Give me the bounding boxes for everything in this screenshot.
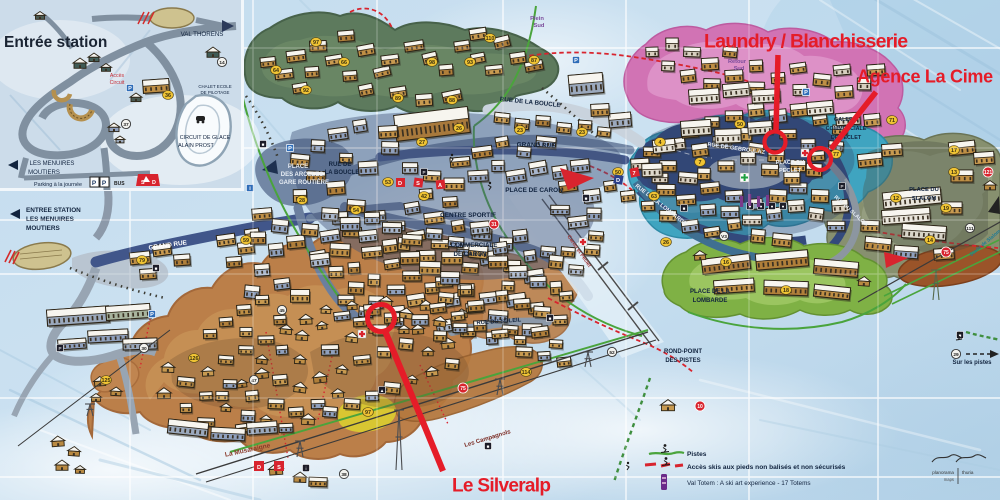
svg-text:110: 110	[486, 36, 495, 42]
svg-text:D: D	[398, 181, 402, 187]
svg-text:114: 114	[522, 370, 531, 376]
svg-text:■: ■	[683, 206, 686, 211]
svg-text:63: 63	[651, 194, 657, 200]
svg-text:COMMERCIALE: COMMERCIALE	[451, 242, 498, 249]
svg-text:Circuit: Circuit	[110, 80, 125, 86]
svg-text:Plein: Plein	[530, 16, 544, 22]
svg-text:Val Totem : A ski art experien: Val Totem : A ski art experience - 17 To…	[687, 480, 811, 487]
svg-text:29: 29	[953, 352, 959, 358]
svg-text:GARE ROUTIÈRE: GARE ROUTIÈRE	[279, 178, 329, 186]
svg-text:Retour: Retour	[728, 59, 747, 65]
svg-text:CENTRE SPORTIF: CENTRE SPORTIF	[440, 212, 496, 219]
svg-text:88: 88	[449, 98, 455, 104]
svg-text:P: P	[92, 180, 97, 187]
svg-text:P: P	[288, 146, 292, 152]
svg-text:Sud: Sud	[534, 23, 545, 29]
svg-text:26: 26	[456, 126, 462, 132]
svg-text:ALAIN PROST: ALAIN PROST	[178, 143, 214, 149]
svg-text:10: 10	[697, 404, 703, 410]
svg-text:■: ■	[262, 142, 265, 147]
svg-text:V3: V3	[721, 234, 727, 240]
svg-text:▲: ▲	[380, 388, 385, 393]
svg-text:19: 19	[943, 206, 949, 212]
svg-text:■: ■	[549, 316, 552, 321]
svg-text:●: ●	[782, 204, 785, 209]
svg-text:89: 89	[395, 96, 401, 102]
svg-text:ROND-POINT: ROND-POINT	[664, 349, 702, 355]
svg-text:ENTREE STATION: ENTREE STATION	[26, 207, 81, 214]
svg-text:111: 111	[966, 226, 974, 232]
svg-text:VAL THORENS: VAL THORENS	[181, 31, 224, 38]
svg-text:97: 97	[313, 40, 319, 46]
svg-text:LA BOUCLE: LA BOUCLE	[325, 170, 360, 176]
svg-text:P: P	[804, 90, 808, 96]
svg-text:30: 30	[141, 346, 147, 352]
svg-text:P: P	[574, 58, 578, 64]
svg-text:D: D	[152, 180, 156, 186]
svg-text:54: 54	[353, 208, 359, 214]
svg-text:12: 12	[893, 196, 899, 202]
svg-text:17: 17	[951, 148, 957, 154]
svg-text:7: 7	[699, 160, 702, 166]
svg-text:23: 23	[517, 128, 523, 134]
svg-text:P: P	[840, 184, 843, 189]
svg-text:PECLET: PECLET	[779, 168, 802, 174]
svg-text:maps: maps	[944, 477, 954, 482]
svg-text:planorama: planorama	[932, 470, 954, 475]
svg-text:71: 71	[889, 118, 895, 124]
svg-text:87: 87	[531, 58, 537, 64]
svg-text:Sur les pistes: Sur les pistes	[952, 360, 992, 366]
svg-text:P: P	[58, 346, 61, 351]
svg-text:PLACE DE CARON: PLACE DE CARON	[505, 187, 563, 194]
svg-text:P: P	[128, 86, 132, 92]
svg-text:D: D	[616, 178, 620, 184]
svg-text:37: 37	[123, 122, 129, 128]
svg-text:P: P	[422, 170, 425, 175]
svg-text:14: 14	[219, 60, 225, 66]
svg-text:13: 13	[951, 170, 957, 176]
svg-text:DE CARON: DE CARON	[453, 251, 487, 258]
svg-text:DE PILOTAGE: DE PILOTAGE	[201, 90, 230, 95]
svg-text:97: 97	[365, 410, 371, 416]
svg-text:53: 53	[385, 180, 391, 186]
svg-text:Accès: Accès	[110, 73, 125, 79]
svg-text:7: 7	[632, 171, 635, 177]
svg-text:PLACE DU: PLACE DU	[776, 160, 805, 166]
svg-text:LES MENUIRES: LES MENUIRES	[30, 161, 75, 167]
svg-text:S: S	[416, 181, 420, 187]
svg-text:Le Silveralp: Le Silveralp	[452, 476, 550, 497]
svg-text:DES AROLLES: DES AROLLES	[281, 172, 323, 178]
svg-text:A: A	[438, 183, 442, 189]
svg-text:26: 26	[663, 240, 669, 246]
svg-text:75: 75	[943, 250, 949, 256]
svg-text:●: ●	[771, 204, 774, 209]
svg-text:PLACE: PLACE	[288, 164, 308, 170]
svg-text:DES PISTES: DES PISTES	[665, 358, 700, 364]
svg-text:66: 66	[341, 60, 347, 66]
svg-text:Accès skis aux pieds non balis: Accès skis aux pieds non balisés et non …	[687, 464, 846, 471]
svg-text:thuria: thuria	[962, 470, 974, 475]
svg-text:125: 125	[102, 378, 111, 384]
svg-text:■: ■	[487, 444, 490, 449]
svg-text:52: 52	[609, 350, 615, 356]
svg-text:18: 18	[783, 288, 789, 294]
svg-text:i: i	[305, 466, 306, 471]
svg-text:64: 64	[273, 68, 279, 74]
svg-text:59: 59	[243, 238, 249, 244]
svg-text:77: 77	[833, 152, 839, 158]
svg-text:50: 50	[737, 122, 743, 128]
svg-text:126: 126	[190, 356, 199, 362]
svg-text:Pistes: Pistes	[687, 451, 707, 458]
svg-text:92: 92	[303, 88, 309, 94]
svg-text:14: 14	[927, 238, 933, 244]
svg-text:PLACE DE LA: PLACE DE LA	[690, 289, 731, 295]
svg-text:79: 79	[139, 258, 145, 264]
svg-text:S: S	[277, 465, 281, 471]
svg-text:Entrée station: Entrée station	[4, 34, 107, 51]
svg-text:CHALET ECOLE: CHALET ECOLE	[198, 84, 231, 89]
svg-text:45: 45	[279, 308, 285, 314]
svg-text:■: ■	[155, 266, 158, 271]
svg-text:MOUTIERS: MOUTIERS	[28, 170, 60, 176]
svg-text:23: 23	[579, 130, 585, 136]
svg-text:27: 27	[419, 140, 425, 146]
svg-text:Sud: Sud	[734, 66, 745, 72]
svg-text:36: 36	[165, 93, 171, 99]
svg-text:121: 121	[984, 170, 993, 176]
svg-text:PLACE DU: PLACE DU	[909, 187, 939, 193]
svg-text:■: ■	[585, 196, 588, 201]
svg-text:31: 31	[491, 222, 497, 228]
svg-text:SLALOM: SLALOM	[912, 196, 937, 202]
svg-text:LOMBARDE: LOMBARDE	[693, 298, 728, 304]
svg-text:P: P	[102, 180, 107, 187]
svg-text:47: 47	[251, 378, 257, 384]
svg-text:42: 42	[421, 194, 427, 200]
svg-text:D: D	[257, 465, 261, 471]
svg-text:28: 28	[299, 198, 305, 204]
svg-text:P: P	[150, 312, 154, 318]
svg-text:MOUTIERS: MOUTIERS	[26, 225, 60, 232]
svg-text:S: S	[141, 180, 145, 186]
svg-text:16: 16	[723, 260, 729, 266]
svg-text:98: 98	[429, 60, 435, 66]
svg-text:BUS: BUS	[114, 181, 125, 187]
svg-text:4: 4	[659, 140, 662, 146]
svg-text:CIRCUIT DE GLACE: CIRCUIT DE GLACE	[180, 135, 231, 141]
svg-text:RUE DE: RUE DE	[329, 162, 352, 168]
svg-text:93: 93	[467, 60, 473, 66]
svg-text:75: 75	[460, 386, 466, 392]
svg-text:Agence La Cime: Agence La Cime	[857, 67, 993, 87]
svg-text:Laundry / Blanchisserie: Laundry / Blanchisserie	[704, 31, 908, 53]
svg-text:Parking à la journée: Parking à la journée	[34, 182, 82, 188]
